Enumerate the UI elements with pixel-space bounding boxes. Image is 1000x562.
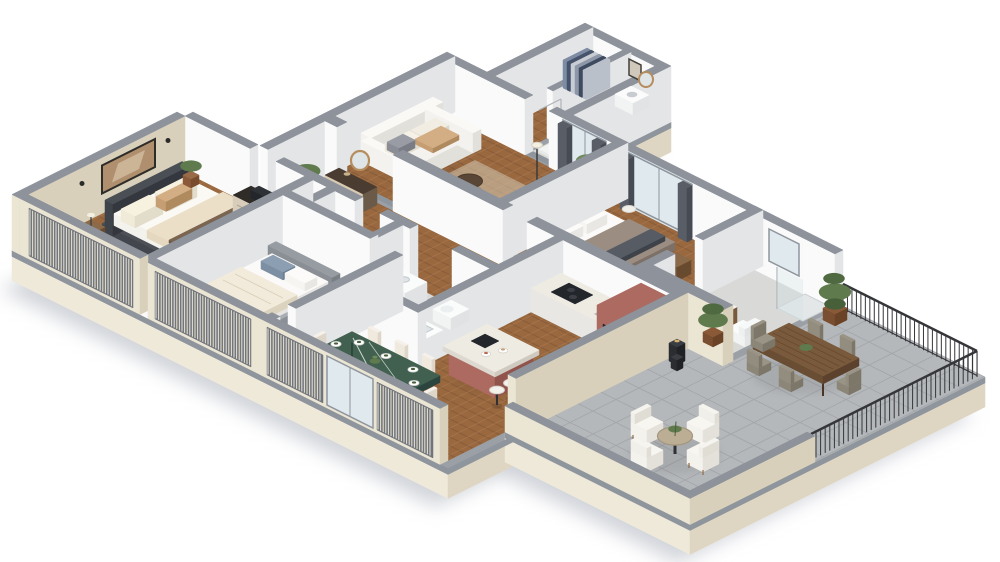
bar-stool-3 [490, 386, 505, 394]
burner-1 [567, 288, 575, 292]
hall-vase [344, 172, 351, 176]
terrace-chair-4-back-side [791, 371, 794, 385]
dining-chair-2-back-side [405, 345, 408, 361]
terrace-chair-1-back-side [820, 324, 823, 338]
wc-round-mirror [639, 72, 653, 87]
master-plant [180, 160, 202, 171]
lantern-glow-1 [674, 340, 679, 343]
terrace-chair-6-back-front [846, 374, 849, 388]
apartment-3d-floorplan [0, 0, 1000, 562]
band-wall-b-side [503, 205, 513, 266]
bedroom2-curtain-right-front [678, 184, 687, 243]
floor-lamp-shade [532, 142, 543, 148]
bedroom2-curtain-left-side [629, 157, 634, 214]
place-food-6 [334, 342, 338, 344]
terrace-plant-1-top [702, 303, 724, 314]
bedroom2-curtain-right-side [687, 186, 692, 243]
master-west-facade-front [12, 195, 20, 255]
place-food-7 [412, 381, 416, 383]
dining-centerpiece-top [372, 356, 377, 359]
bed2-stool [622, 206, 636, 213]
terrace-chair-5-back-front [751, 326, 754, 340]
render-canvas [0, 0, 1000, 562]
hanging-clothes-5-front [583, 70, 586, 100]
ensuite-south-wall-side [723, 305, 733, 366]
south-facade-side [440, 405, 448, 465]
hanging-clothes-3-front [575, 66, 578, 96]
hanging-clothes-1-front [567, 62, 570, 92]
dining-chair-3-back-side [432, 358, 435, 374]
terrace-plant-2-top [823, 273, 845, 284]
terrace-plant-2 [819, 284, 851, 301]
terrace-plant-2-low [824, 298, 846, 309]
hanging-clothes-4-front [579, 68, 582, 98]
wall-lamp-1 [166, 138, 171, 143]
hanging-clothes-2-front [571, 64, 574, 94]
terrace-chair-3-back-side [759, 355, 762, 369]
dining-centerpiece [370, 358, 381, 364]
hall-round-mirror [351, 151, 369, 170]
nightstand-lamp [87, 213, 95, 217]
terrace-chair-2-back-side [852, 340, 855, 354]
terrace-table-plant [799, 344, 813, 351]
burner-2 [569, 295, 577, 299]
plate-food-2 [484, 352, 488, 354]
wall-lamp-2 [80, 181, 85, 186]
toilet-seat [440, 306, 454, 313]
plate-food-1 [501, 348, 505, 350]
terrace-plant-1 [698, 312, 728, 327]
master-headboard-front [105, 200, 113, 236]
master-south-facade-side [140, 255, 148, 315]
terrace-parapet-south-side [690, 495, 698, 525]
dining-chair-1-back-side [378, 331, 381, 347]
hanging-clothes-0-front [563, 60, 566, 90]
place-food-2 [411, 368, 415, 370]
place-food-0 [357, 341, 361, 343]
place-food-1 [384, 354, 388, 356]
wc-basin [627, 92, 638, 98]
